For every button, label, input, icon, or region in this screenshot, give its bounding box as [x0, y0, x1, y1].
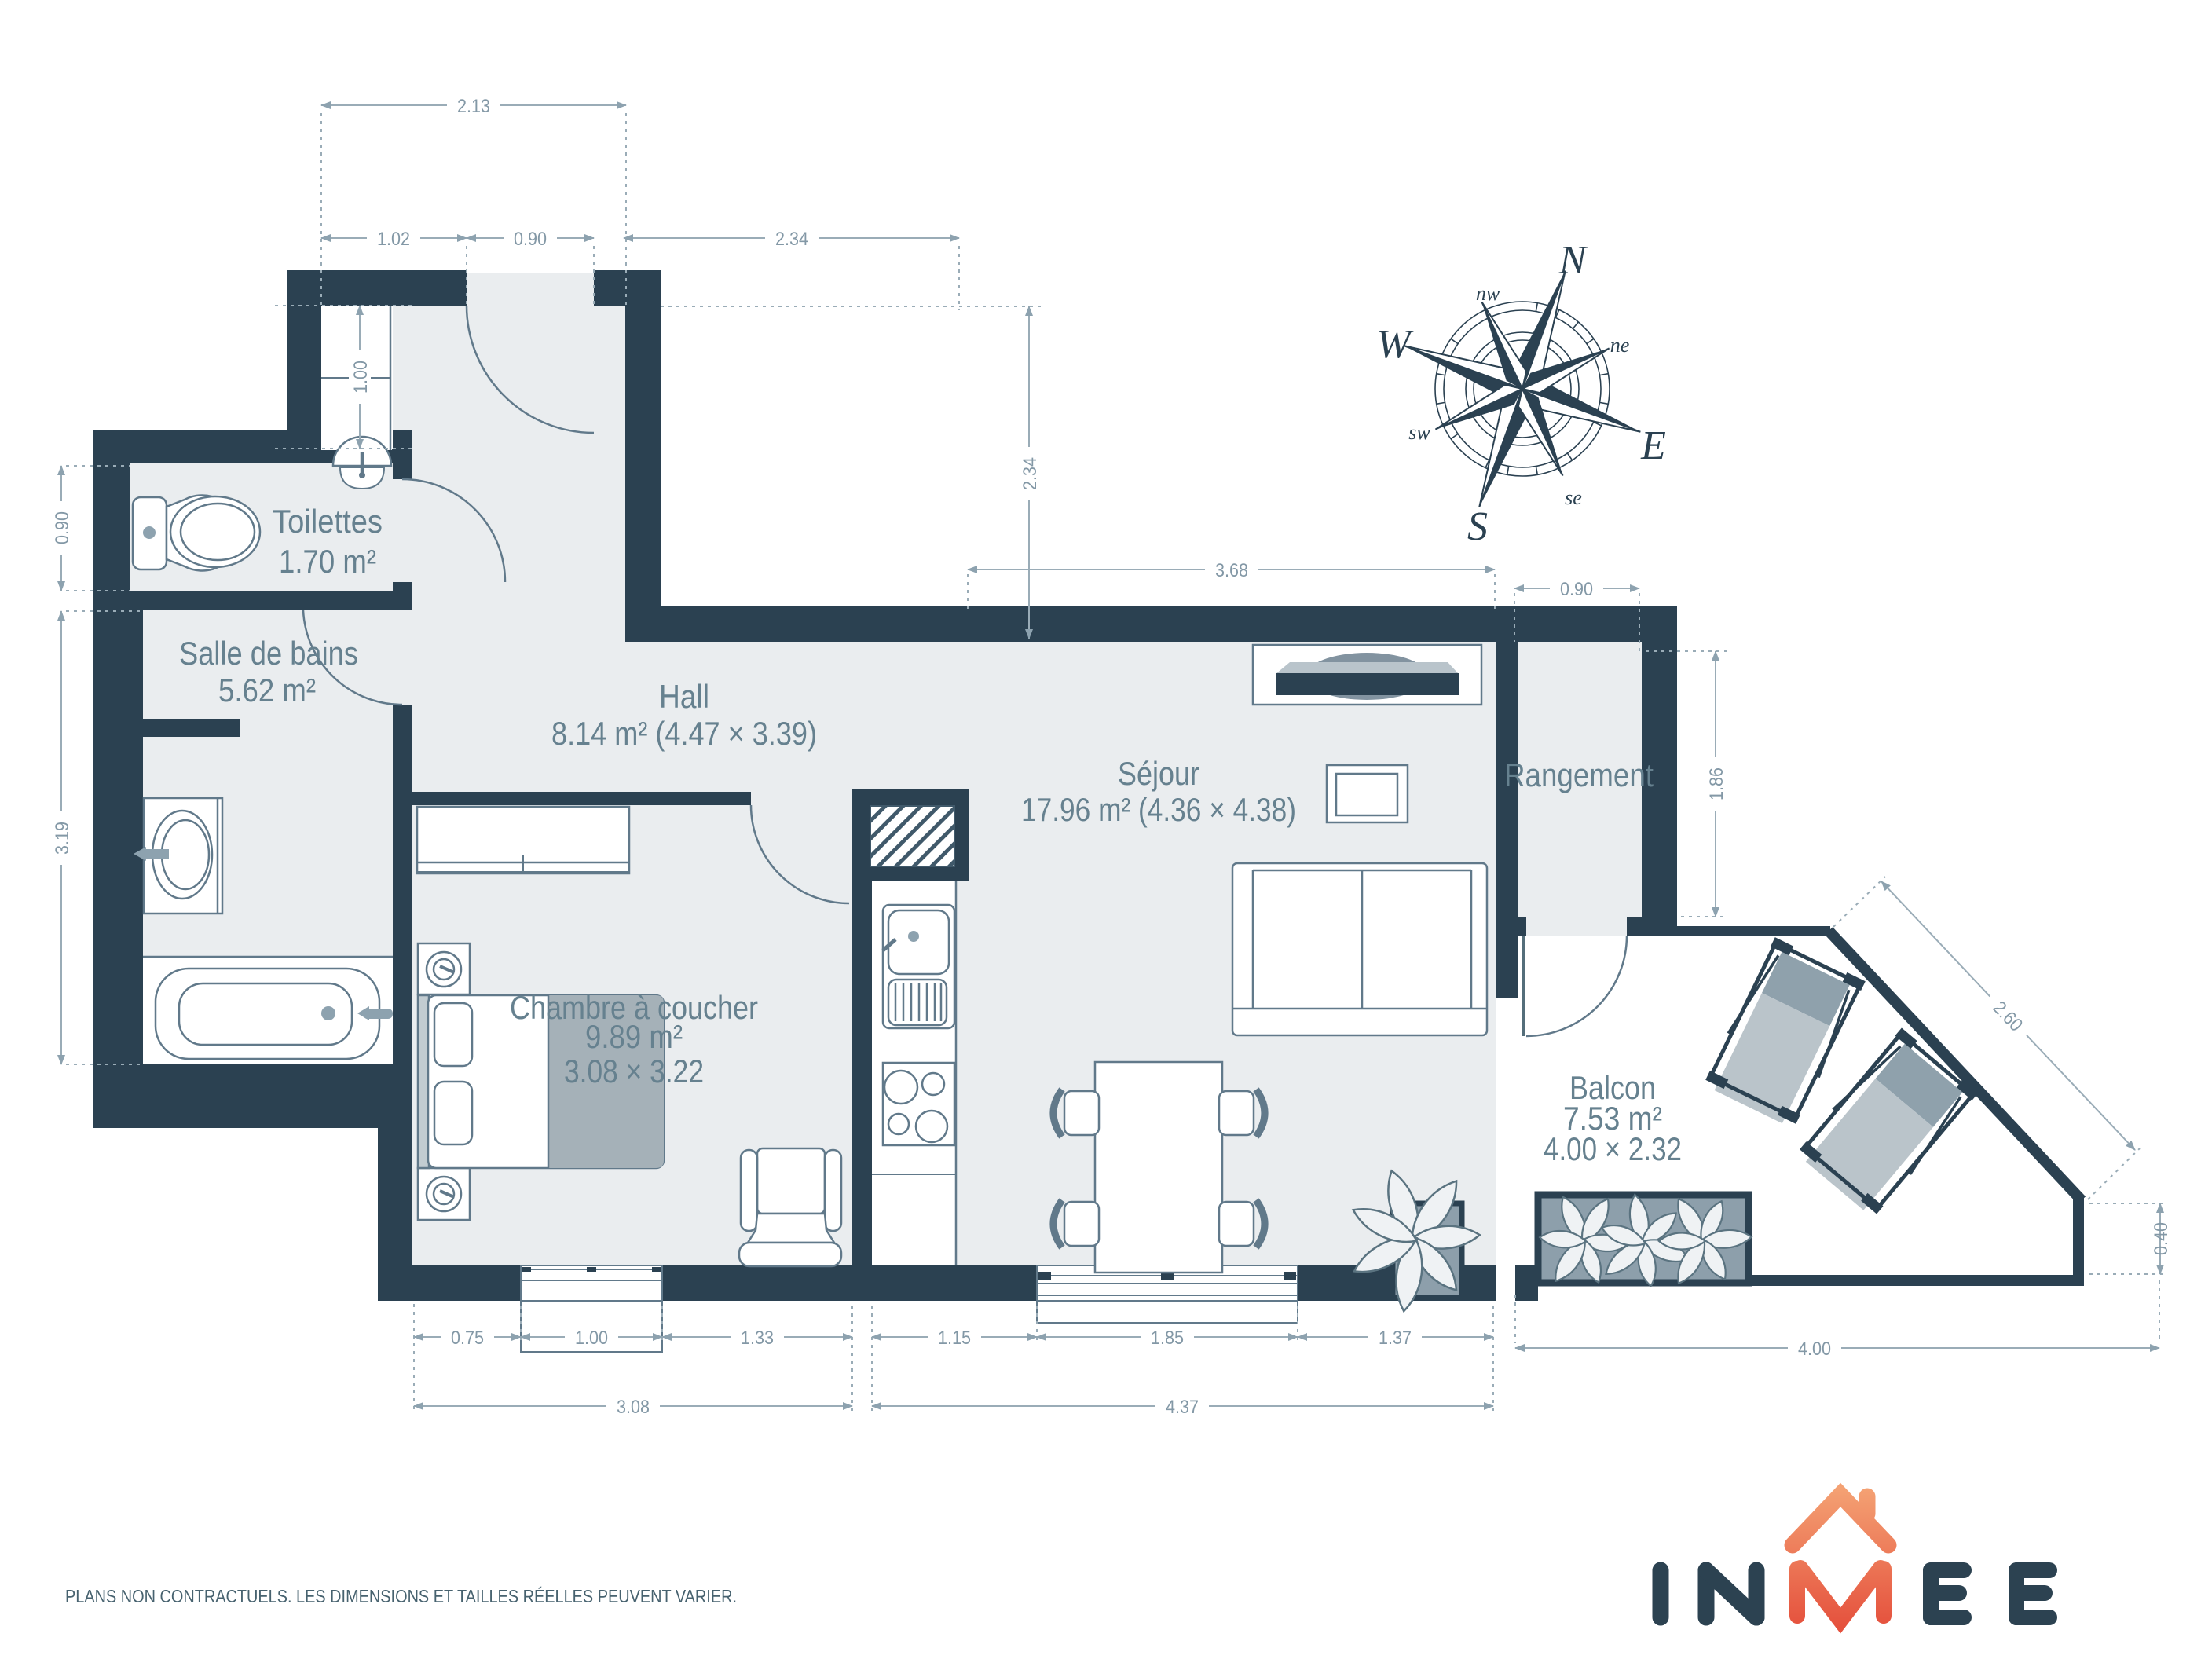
svg-text:3.19: 3.19	[52, 822, 73, 855]
svg-text:1.70 m²: 1.70 m²	[279, 543, 376, 580]
svg-text:2.34: 2.34	[1020, 457, 1041, 490]
svg-text:1.00: 1.00	[350, 361, 372, 394]
svg-text:1.02: 1.02	[377, 229, 410, 250]
svg-text:1.00: 1.00	[575, 1328, 608, 1349]
svg-text:N: N	[1558, 238, 1589, 283]
svg-text:W: W	[1376, 322, 1414, 367]
svg-text:Toilettes: Toilettes	[273, 503, 383, 540]
svg-text:0.90: 0.90	[514, 229, 547, 250]
svg-text:0.40: 0.40	[2151, 1222, 2172, 1255]
svg-text:se: se	[1565, 486, 1582, 509]
svg-text:Rangement: Rangement	[1504, 756, 1654, 793]
svg-text:nw: nw	[1476, 282, 1500, 305]
svg-text:8.14 m² (4.47 × 3.39): 8.14 m² (4.47 × 3.39)	[551, 715, 817, 752]
svg-text:4.37: 4.37	[1166, 1397, 1199, 1418]
svg-text:S: S	[1467, 504, 1488, 549]
svg-text:1.37: 1.37	[1379, 1328, 1412, 1349]
svg-text:Séjour: Séjour	[1118, 755, 1199, 792]
svg-text:ne: ne	[1610, 334, 1630, 357]
svg-text:9.89 m²: 9.89 m²	[585, 1018, 683, 1055]
svg-text:Hall: Hall	[659, 678, 709, 715]
svg-text:E: E	[1640, 423, 1666, 468]
svg-text:0.90: 0.90	[52, 511, 73, 544]
svg-text:1.85: 1.85	[1151, 1328, 1184, 1349]
svg-text:PLANS NON CONTRACTUELS. LES DI: PLANS NON CONTRACTUELS. LES DIMENSIONS E…	[65, 1586, 737, 1606]
svg-text:4.00: 4.00	[1798, 1339, 1831, 1360]
svg-text:4.00 × 2.32: 4.00 × 2.32	[1544, 1130, 1682, 1167]
svg-text:3.68: 3.68	[1215, 560, 1248, 581]
svg-text:1.86: 1.86	[1706, 767, 1727, 800]
svg-text:Salle de bains: Salle de bains	[179, 635, 358, 672]
svg-text:sw: sw	[1408, 421, 1430, 444]
svg-text:3.08 × 3.22: 3.08 × 3.22	[564, 1053, 704, 1090]
svg-text:2.13: 2.13	[457, 96, 490, 117]
svg-text:0.75: 0.75	[451, 1328, 484, 1349]
svg-text:3.08: 3.08	[617, 1397, 650, 1418]
svg-text:1.15: 1.15	[938, 1328, 971, 1349]
svg-text:5.62 m²: 5.62 m²	[218, 672, 316, 709]
svg-text:0.90: 0.90	[1560, 579, 1593, 600]
svg-text:1.33: 1.33	[741, 1328, 774, 1349]
svg-text:2.34: 2.34	[775, 229, 808, 250]
svg-text:17.96 m² (4.36 × 4.38): 17.96 m² (4.36 × 4.38)	[1021, 791, 1296, 828]
